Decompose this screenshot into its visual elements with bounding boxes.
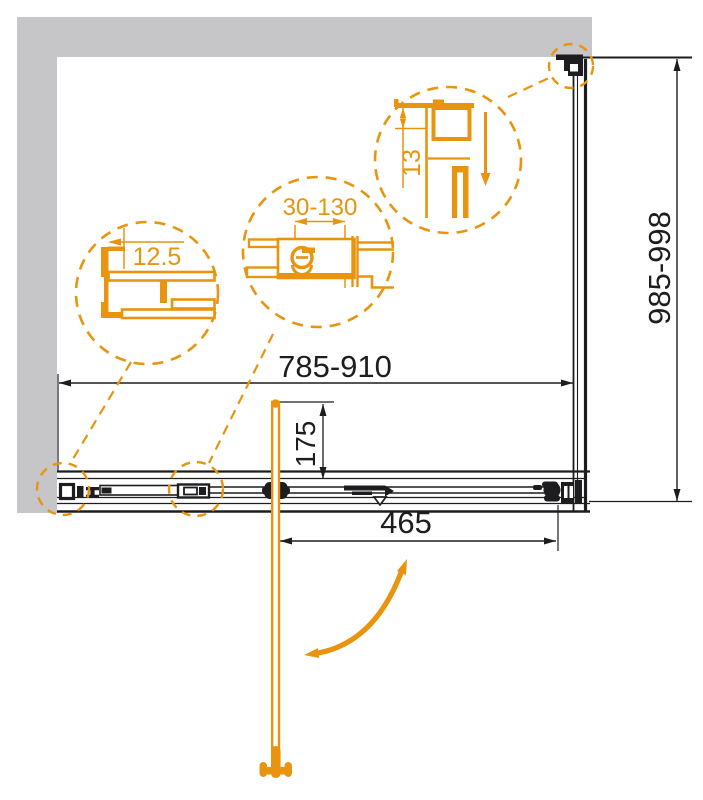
arrow-down-left-icon	[304, 648, 319, 658]
arrow-left-icon	[59, 380, 71, 387]
slide-direction-arrow	[481, 112, 491, 186]
arrow-up-icon	[674, 59, 681, 71]
detail-circle-top-profile	[375, 87, 521, 233]
technical-drawing: 785-910 985-998 175 465 12.5 30-130 13	[0, 0, 703, 800]
wall-fixing-profile	[61, 485, 74, 499]
detail-wall-profile-label: 12.5	[117, 244, 197, 270]
dim-handle-inset-label: 175	[291, 399, 321, 489]
dim-door-opening-label: 465	[346, 506, 466, 538]
detail-adjustment-label: 30-130	[250, 195, 390, 220]
door-swing-arrow	[304, 559, 407, 658]
adjustment-profile-section	[247, 236, 394, 288]
dim-overall-width-label: 785-910	[255, 350, 415, 382]
stopper-bracket	[344, 486, 394, 506]
arrow-down-icon	[674, 489, 681, 501]
wall-top	[17, 17, 592, 57]
arrow-down-icon	[481, 173, 491, 186]
side-panel-glass-lines	[574, 59, 586, 512]
dim-overall-depth-label: 985-998	[642, 198, 676, 338]
door-handle-bar	[260, 399, 293, 778]
corner-assembly	[533, 480, 582, 503]
drawing-canvas	[0, 0, 703, 800]
detail-top-gap-label: 13	[399, 133, 425, 193]
arrow-up-icon	[400, 108, 406, 118]
arrow-right-icon	[544, 538, 556, 545]
handle-foot	[260, 746, 293, 778]
arrow-left-icon	[280, 538, 292, 545]
wall-left	[17, 17, 57, 513]
roller-detail	[178, 485, 209, 498]
arrow-down-icon	[400, 119, 406, 129]
arrow-right-icon	[561, 380, 573, 387]
